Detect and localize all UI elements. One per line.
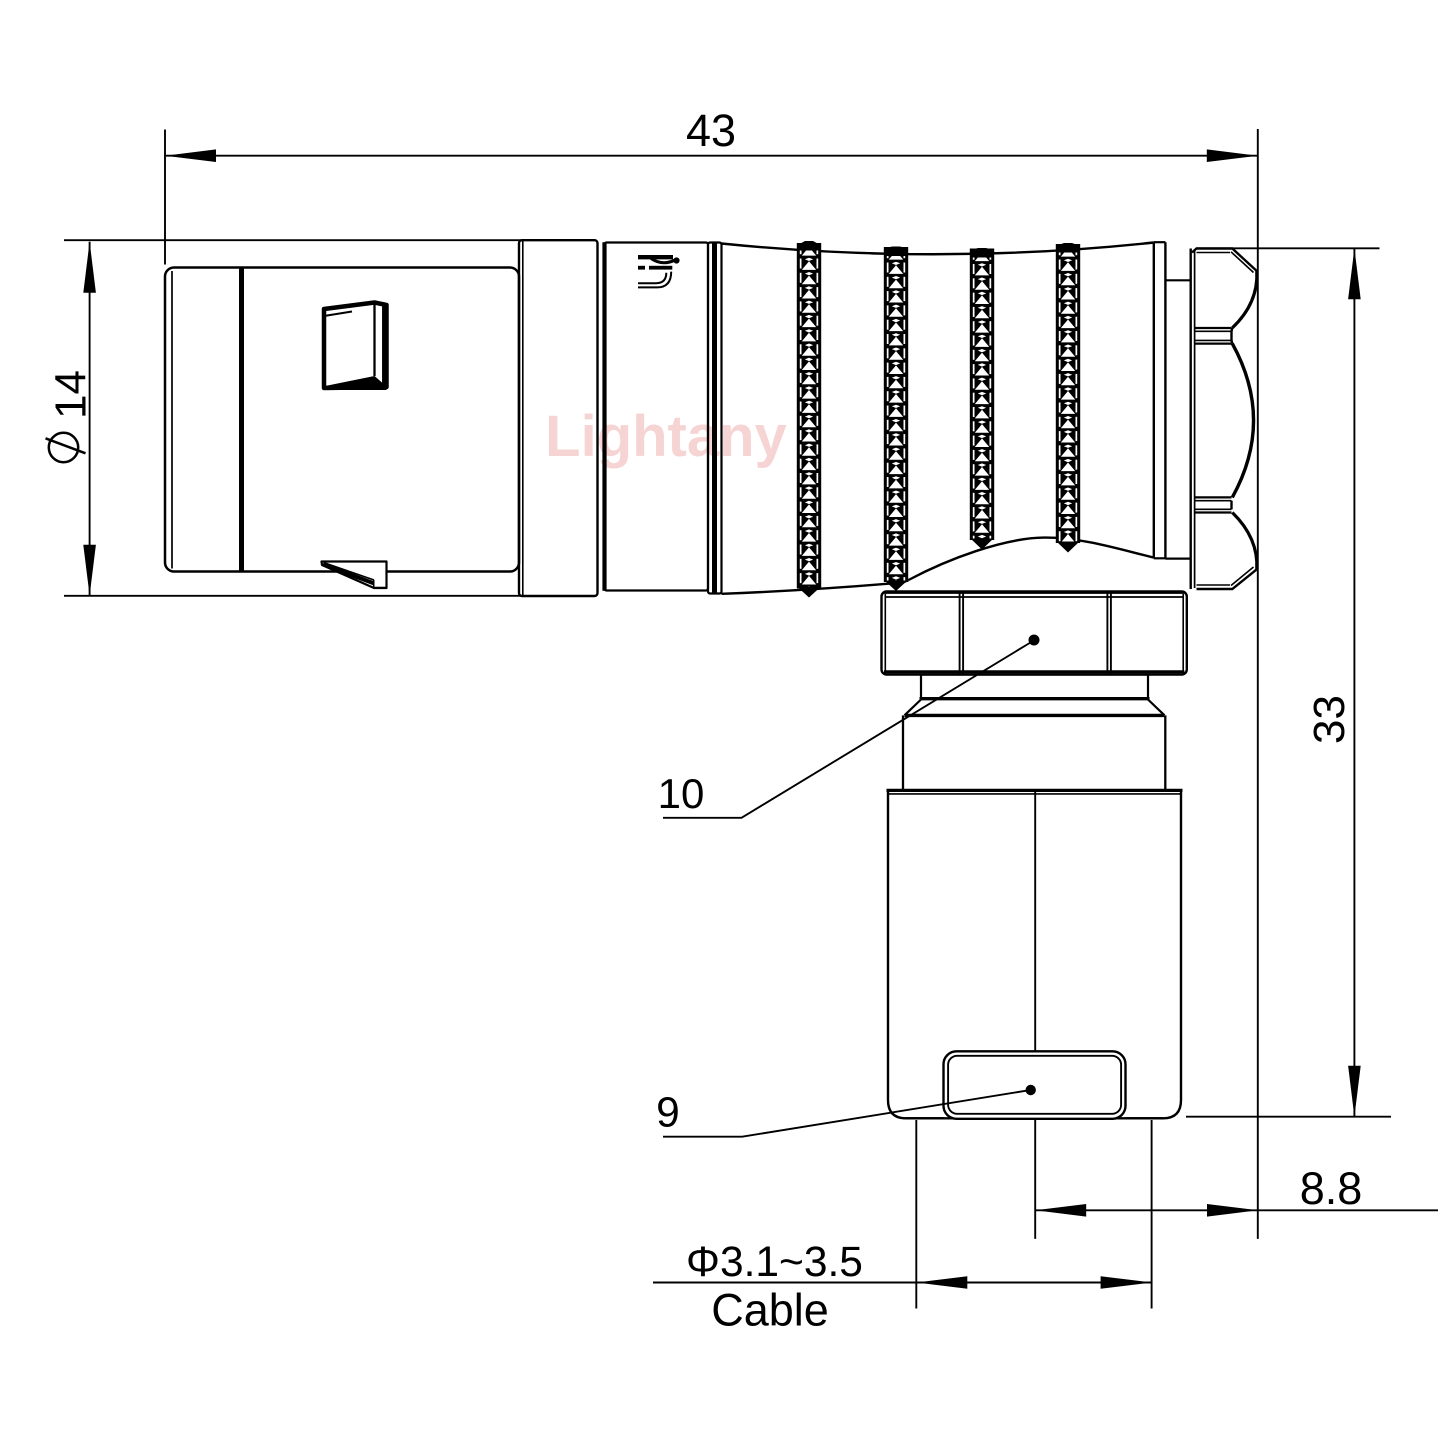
svg-text:10: 10	[658, 770, 705, 817]
svg-text:9: 9	[656, 1090, 680, 1137]
svg-text:43: 43	[686, 105, 736, 156]
svg-text:Lightany: Lightany	[545, 404, 787, 469]
svg-text:33: 33	[1305, 695, 1354, 744]
svg-text:Φ3.1~3.5: Φ3.1~3.5	[686, 1239, 863, 1286]
svg-text:14: 14	[47, 370, 96, 419]
svg-text:Cable: Cable	[711, 1285, 829, 1336]
svg-text:8.8: 8.8	[1300, 1163, 1363, 1214]
